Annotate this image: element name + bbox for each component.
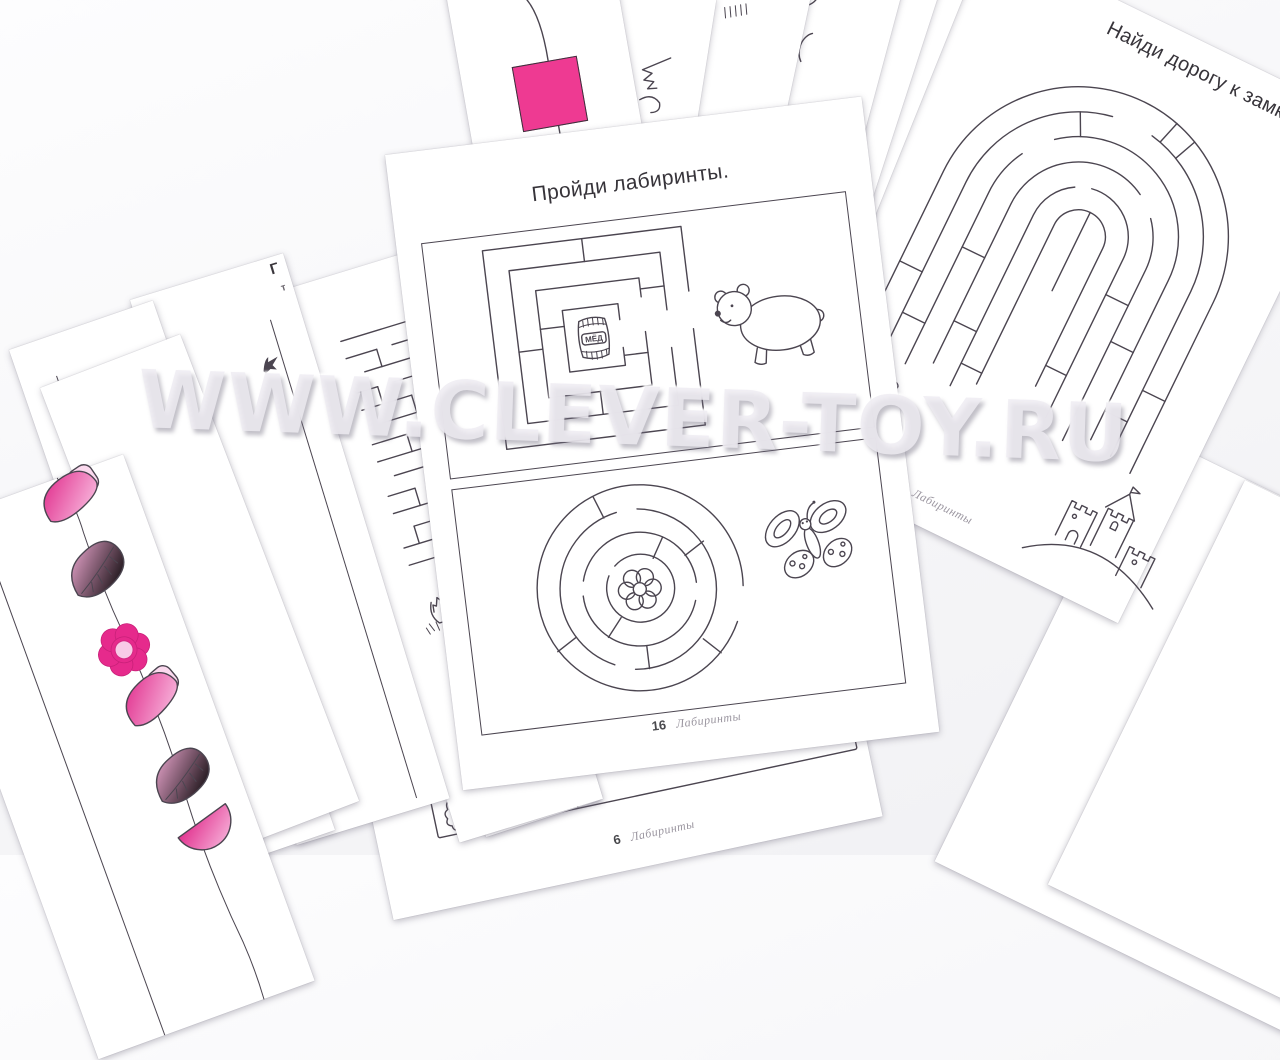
fragment-letter: Г bbox=[268, 260, 281, 279]
series-label: Лабиринты bbox=[629, 817, 696, 845]
fragment-letter-small: т bbox=[280, 282, 288, 294]
series-label: Лабиринты bbox=[910, 486, 975, 528]
magenta-square-large bbox=[512, 56, 588, 132]
square-maze-drawing: МЁД bbox=[477, 221, 711, 457]
flower-center-drawing bbox=[616, 567, 664, 612]
page-number: 16 bbox=[651, 717, 667, 734]
honey-barrel-drawing: МЁД bbox=[576, 316, 611, 361]
hatch-mark-drawing bbox=[719, 0, 754, 31]
worksheet-page-labyrinths: Пройди лабиринты. МЁД bbox=[385, 97, 939, 791]
series-label: Лабиринты bbox=[675, 709, 742, 732]
page-number: 6 bbox=[612, 831, 622, 847]
page-footer-bottom: 6 Лабиринты bbox=[554, 803, 753, 860]
butterfly-drawing bbox=[750, 484, 876, 592]
circle-maze-drawing bbox=[517, 467, 762, 714]
bear-drawing bbox=[703, 268, 834, 380]
